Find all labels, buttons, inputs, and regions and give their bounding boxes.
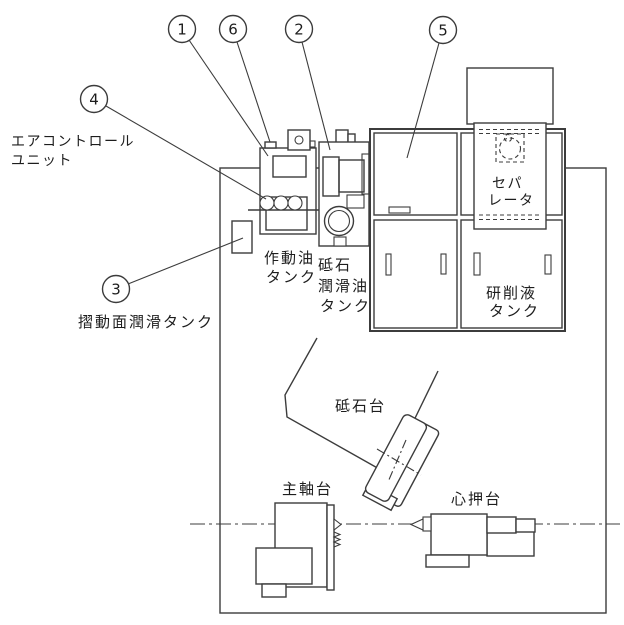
- air-control-unit-label-line1: エアコントロール: [11, 134, 135, 150]
- wheel-lube-tank-unit: [319, 130, 369, 246]
- hydraulic-side-tab: [310, 141, 315, 147]
- wheel-lube-tank-label-line2: 潤滑油: [318, 277, 369, 295]
- headstock-assembly: [256, 503, 341, 597]
- tailstock-center-cone: [411, 519, 423, 530]
- headstock-base-box: [256, 548, 312, 584]
- tailstock-base: [426, 555, 469, 567]
- callout-4: 4: [81, 86, 108, 113]
- hydraulic-tank-label-line2: タンク: [266, 268, 317, 286]
- callout-number: 1: [177, 20, 187, 38]
- wheel-lube-tank-label-line3: タンク: [320, 297, 371, 315]
- coolant-tank-label-line1: 研削液: [486, 284, 537, 302]
- lube-bottom-tab: [334, 237, 346, 246]
- separator-label-line2: レータ: [488, 193, 535, 209]
- wheel-head-label: 砥石台: [335, 397, 386, 415]
- tailstock-assembly: [411, 514, 535, 567]
- slide-lubrication-tank-label: 摺動面潤滑タンク: [78, 313, 214, 331]
- hydraulic-tank-tab: [265, 142, 276, 148]
- headstock-center-cone: [334, 519, 341, 530]
- separator-top-unit: [467, 68, 553, 124]
- callout-2: 2: [286, 16, 313, 43]
- headstock-label: 主軸台: [282, 480, 333, 498]
- callout-number: 3: [111, 280, 121, 298]
- pump-circle: [288, 196, 302, 210]
- machine-layout-diagram: 1 6 2 5 4 3 エアコントロール ユニット 摺動面潤滑タンク 作動油 タ…: [0, 0, 624, 625]
- callout-3: 3: [103, 276, 130, 303]
- tailstock-end-cap: [516, 519, 535, 532]
- callout-5: 5: [430, 17, 457, 44]
- tailstock-label: 心押台: [451, 490, 502, 508]
- callout-number: 2: [294, 20, 304, 38]
- pump-circle: [260, 196, 274, 210]
- coolant-tank-label-line2: タンク: [489, 302, 540, 320]
- hydraulic-oil-tank-unit: [248, 130, 322, 234]
- headstock-foot: [262, 584, 286, 597]
- tailstock-body: [431, 514, 487, 555]
- headstock-drive-dog-marks: [334, 532, 340, 547]
- separator-label-line1: セパ: [492, 176, 523, 192]
- leader-line-6: [237, 42, 270, 142]
- callout-number: 4: [89, 90, 99, 108]
- callout-number: 5: [438, 21, 448, 39]
- slide-lubrication-tank-box: [232, 221, 252, 253]
- leader-line-4: [106, 106, 266, 199]
- headstock-face-plate: [327, 505, 334, 590]
- callout-1: 1: [169, 16, 196, 43]
- tailstock-quill: [487, 517, 516, 533]
- pump-circle: [274, 196, 288, 210]
- callout-number: 6: [228, 20, 238, 38]
- air-control-unit-label-line2: ユニット: [11, 153, 73, 169]
- tailstock-nose: [423, 517, 431, 531]
- callout-6: 6: [220, 16, 247, 43]
- leader-line-1: [189, 40, 268, 156]
- tank-cell-top-left: [374, 133, 457, 215]
- leader-line-3: [128, 238, 243, 284]
- diagram-canvas: 1 6 2 5 4 3 エアコントロール ユニット 摺動面潤滑タンク 作動油 タ…: [0, 0, 624, 625]
- hydraulic-tank-label-line1: 作動油: [264, 249, 315, 267]
- wheel-lube-tank-label-line1: 砥石: [318, 256, 352, 274]
- tailstock-lower-housing: [487, 531, 534, 556]
- hydraulic-motor-block: [288, 130, 310, 150]
